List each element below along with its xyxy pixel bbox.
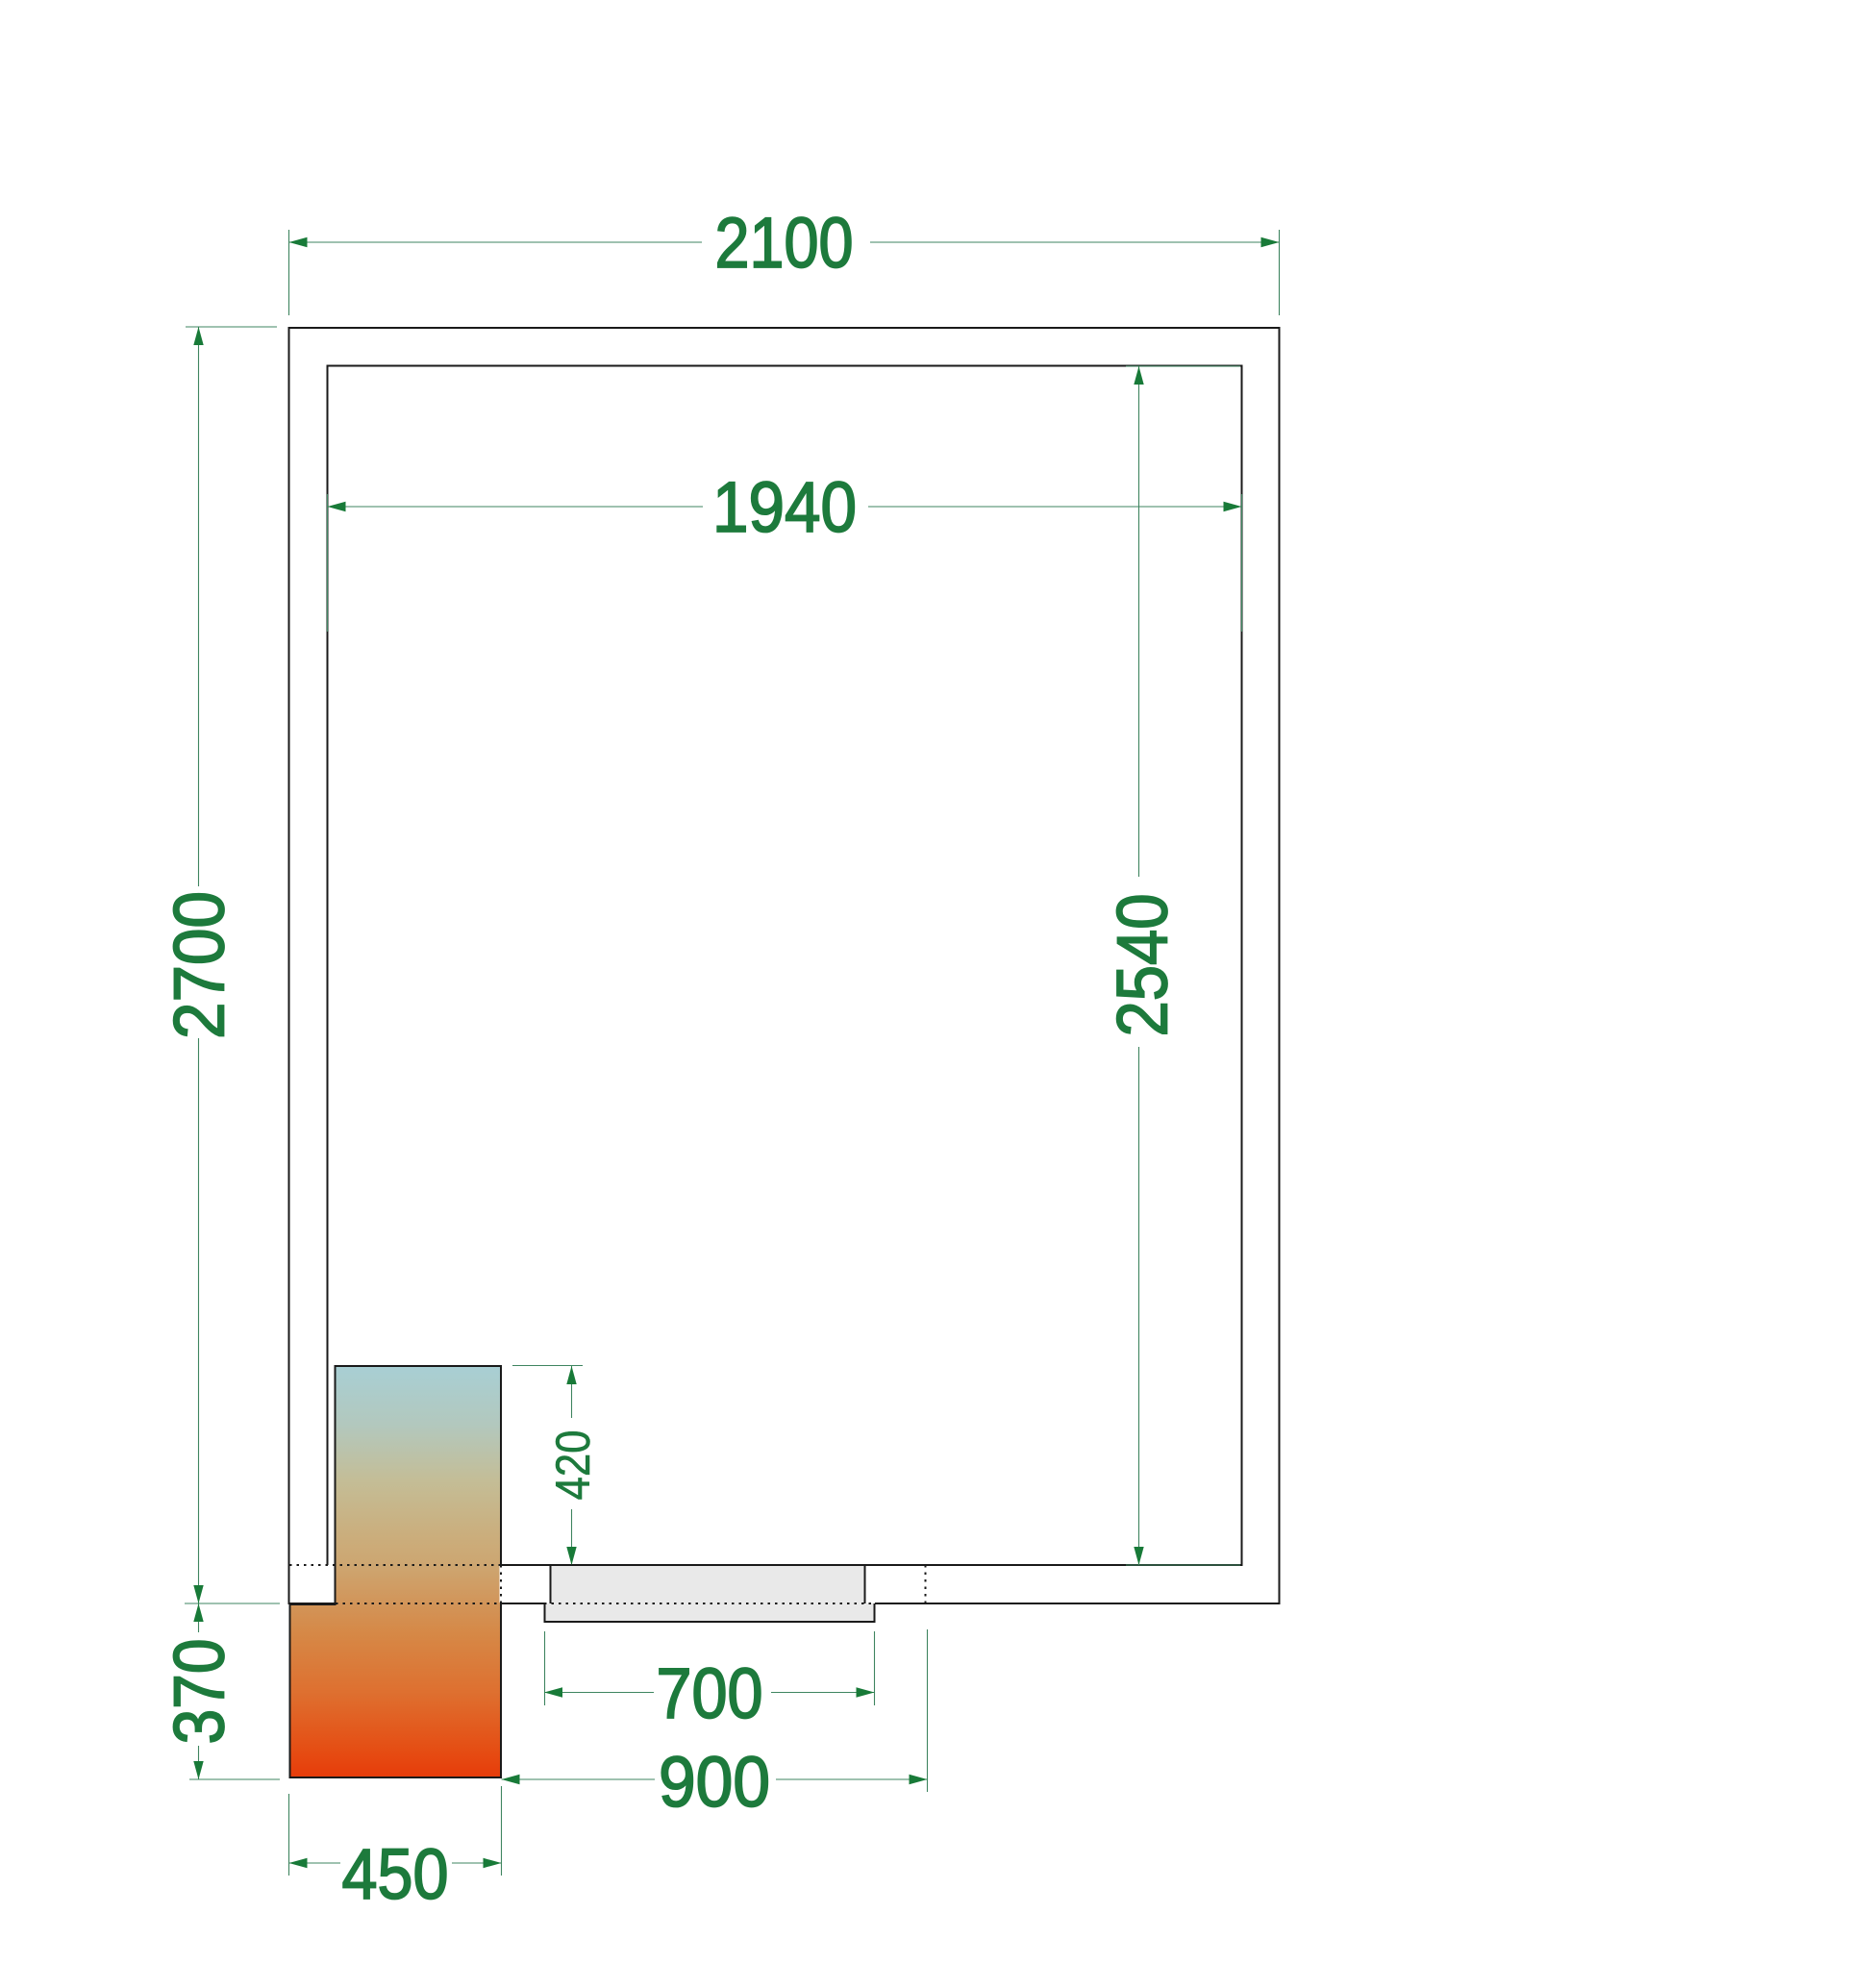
- svg-text:450: 450: [342, 1834, 449, 1914]
- svg-text:420: 420: [546, 1430, 600, 1501]
- svg-text:1940: 1940: [712, 467, 857, 547]
- svg-text:2100: 2100: [715, 203, 854, 283]
- svg-text:2540: 2540: [1103, 894, 1183, 1037]
- svg-text:700: 700: [657, 1653, 763, 1733]
- svg-text:370: 370: [160, 1639, 239, 1745]
- svg-text:900: 900: [659, 1742, 770, 1822]
- svg-text:2700: 2700: [160, 891, 239, 1039]
